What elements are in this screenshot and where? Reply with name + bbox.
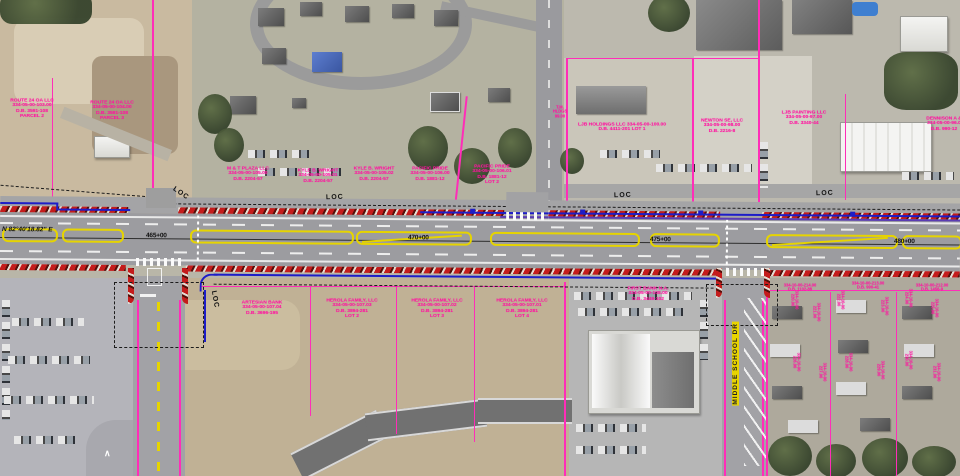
parcel-annotation: PACIFIC PRIDE334-05-00-106.00D.B. 1881-1… <box>410 166 449 182</box>
parcel-annotation: LJB PAINTING LLC334-05-00-97.00D.B. 3340… <box>782 110 827 126</box>
parcel-annotation: HEROLA FAMILY, LLC334-05-00-107.03D.B. 3… <box>326 298 377 319</box>
parcel-annotation-layer: ROUTE 24 OA LLC334-05-00-103.00D.B. 3591… <box>0 0 960 476</box>
parcel-annotation: HEROLA FAMILY, LLC334-05-00-107.02D.B. 3… <box>411 298 462 319</box>
parcel-annotation: 334-10-00227.00 <box>817 363 826 382</box>
parcel-annotation: 334-10-00222.00 <box>835 291 844 310</box>
parcel-annotation: 334-10-00229.00 <box>875 361 884 380</box>
parcel-annotation: LJB HOLDINGS LLC 334-05-00-100.00D.B. 44… <box>578 122 666 133</box>
parcel-annotation: FIRST BANK N.A.334-05-00-108.00D.B. 3449… <box>628 286 669 302</box>
parcel-annotation: ROUTE 24 OA LLC334-05-00-103.00D.B. 3591… <box>10 98 54 119</box>
parcel-annotation: 334-10-00228.00 <box>843 353 852 372</box>
parcel-annotation: M & T PLAZA LLC334-05-00-105.00D.B. 2204… <box>227 166 269 182</box>
parcel-annotation: ROUTE 24 OA LLC334-05-00-104.00D.B. 3591… <box>90 100 134 121</box>
parcel-annotation: ARTESIAN BANK334-05-00-107.04D.B. 3696-1… <box>242 300 283 316</box>
parcel-annotation: 334-10-00221.00 <box>811 303 820 322</box>
parcel-annotation: NEWTON SE, LLC334-05-00-98.00D.B. 2216-8 <box>701 118 743 134</box>
parcel-annotation: 334-10-00224.00 <box>903 289 912 308</box>
parcel-annotation: 334-10-00226.00 <box>791 353 800 372</box>
parcel-annotation: KYLE B. WRIGHT334-05-00-105.02D.B. 2204-… <box>354 166 395 182</box>
parcel-annotation: HEROLA FAMILY, LLC334-05-00-107.01D.B. 3… <box>496 298 547 319</box>
parcel-annotation: 334-10-00231.00 <box>931 363 940 382</box>
parcel-annotation: 334-10-00-213.00D.B. 990-41 <box>852 282 885 291</box>
parcel-annotation: T.M.HLDGS99.00 <box>553 106 567 119</box>
roadway-plan-canvas: ∧ <box>0 0 960 476</box>
parcel-annotation: 334-10-00223.00 <box>879 297 888 316</box>
parcel-annotation: PACIFIC PRIDE334-05-00-106.01D.B. 1881-1… <box>472 164 511 185</box>
parcel-annotation: 334-10-00-212.00D.B. 1456-9 <box>916 284 949 293</box>
parcel-annotation: 334-10-00225.00 <box>929 299 938 318</box>
parcel-annotation: 334-10-00230.00 <box>903 351 912 370</box>
parcel-annotation: 334-10-00220.00 <box>789 291 798 310</box>
parcel-annotation: DENNISON A &334-05-00-96.0D.B. 990-12 <box>926 116 960 132</box>
parcel-annotation: KYLE B. WRIGHT334-05-00-105.01D.B. 2204-… <box>298 168 339 184</box>
